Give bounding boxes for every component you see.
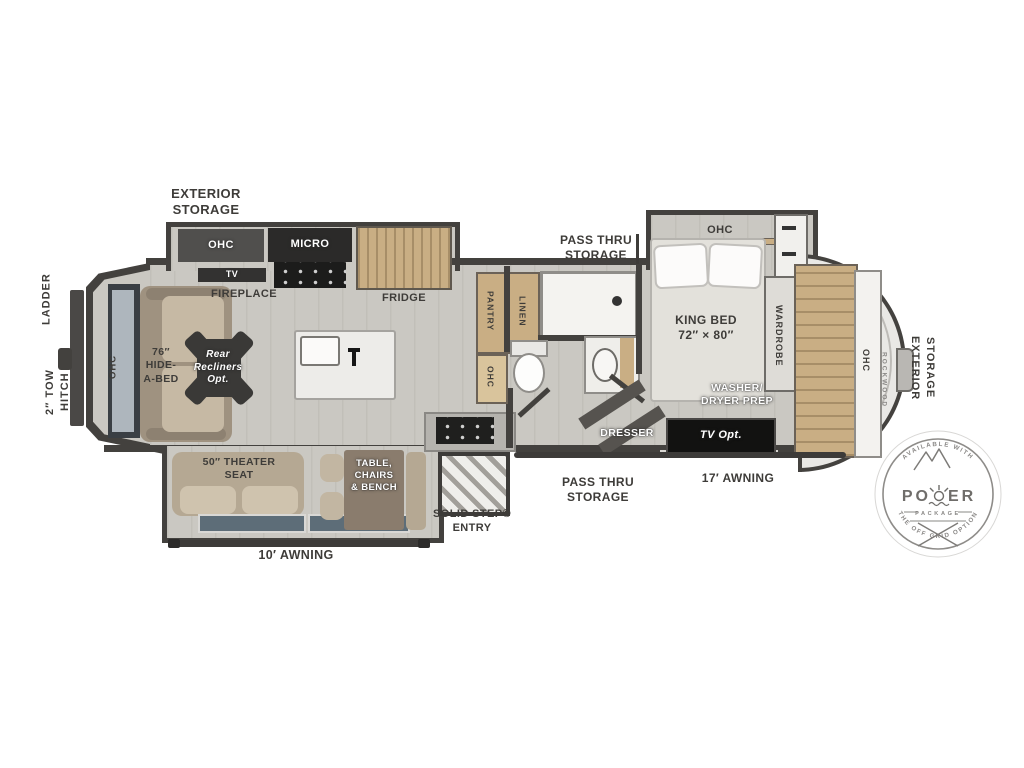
pillow <box>653 243 709 290</box>
island-sink <box>300 336 340 366</box>
label-linen: LINEN <box>510 278 534 344</box>
label-dresser: DRESSER <box>584 426 670 442</box>
optional-tv: TV Opt. <box>666 418 776 454</box>
island-faucet <box>348 348 360 352</box>
slide-window <box>198 514 306 533</box>
label-awning-10: 10′ AWNING <box>240 548 352 564</box>
label-washer-dryer: WASHER/ DRYER PREP <box>684 380 790 410</box>
shower-head-icon <box>612 296 622 306</box>
nightstand-slot <box>782 226 796 230</box>
label-bed-ohc: OHC <box>690 224 750 238</box>
label-fireplace: FIREPLACE <box>196 288 292 302</box>
label-ladder: LADDER <box>36 266 58 332</box>
label-king-bed: KING BED 72″ × 80″ <box>650 312 762 344</box>
label-fridge: FRIDGE <box>360 292 448 306</box>
label-tv: TV <box>198 268 266 282</box>
badge-package-text: PACKAGE <box>915 511 961 517</box>
label-exterior-storage-front: EXTERIOR STORAGE <box>906 312 938 424</box>
dinette-chair <box>320 454 344 482</box>
label-wardrobe: WARDROBE <box>766 288 792 384</box>
label-pantry: PANTRY <box>478 275 502 347</box>
label-awning-17: 17′ AWNING <box>688 470 788 486</box>
shower <box>540 271 638 341</box>
rv-floorplan: TV Opt. LADDER 2″ TOW HITCH OHC 76″ HIDE… <box>0 0 1024 768</box>
toilet <box>513 353 545 393</box>
label-brand: ROCKWOOD <box>876 320 890 440</box>
badge-power-right: ER <box>948 488 976 505</box>
awning-cap <box>418 539 430 548</box>
label-tow-hitch: 2″ TOW HITCH <box>40 350 76 434</box>
label-theater-seat: 50″ THEATER SEAT <box>184 454 294 484</box>
awning-rod-10ft <box>170 540 428 547</box>
range <box>274 262 346 288</box>
label-rear-ohc: OHC <box>104 332 124 402</box>
label-recliners-opt: Rear Recliners Opt. <box>184 342 252 394</box>
label-bath-ohc: OHC <box>478 356 502 398</box>
awning-rod-17ft <box>514 452 846 458</box>
label-table-group: TABLE, CHAIRS & BENCH <box>344 452 404 500</box>
dinette-bench <box>406 452 426 530</box>
label-pass-thru-top: PASS THRU STORAGE <box>546 232 646 264</box>
awning-cap <box>168 539 180 548</box>
theater-seat-cushion <box>180 486 236 514</box>
dinette-chair <box>320 492 344 520</box>
pillow <box>707 243 763 290</box>
label-front-ohc: OHC <box>856 300 876 420</box>
bedroom-wall <box>636 264 642 374</box>
badge-power-left: PO <box>902 488 931 505</box>
label-solid-step: SOLID STEP® ENTRY <box>424 506 520 538</box>
power-package-badge: AVAILABLE WITH THE OFF GRID OPTION PO ER… <box>868 424 1008 564</box>
label-kitchen-ohc: OHC <box>178 229 264 262</box>
label-micro: MICRO <box>268 228 352 262</box>
refrigerator <box>356 226 452 290</box>
nightstand-slot <box>782 252 796 256</box>
cooktop <box>436 417 494 444</box>
front-closet <box>794 264 858 458</box>
theater-seat-cushion <box>242 486 298 514</box>
label-exterior-storage-top: EXTERIOR STORAGE <box>150 184 262 220</box>
island-faucet <box>352 350 356 366</box>
label-pass-thru-bottom: PASS THRU STORAGE <box>548 474 648 506</box>
